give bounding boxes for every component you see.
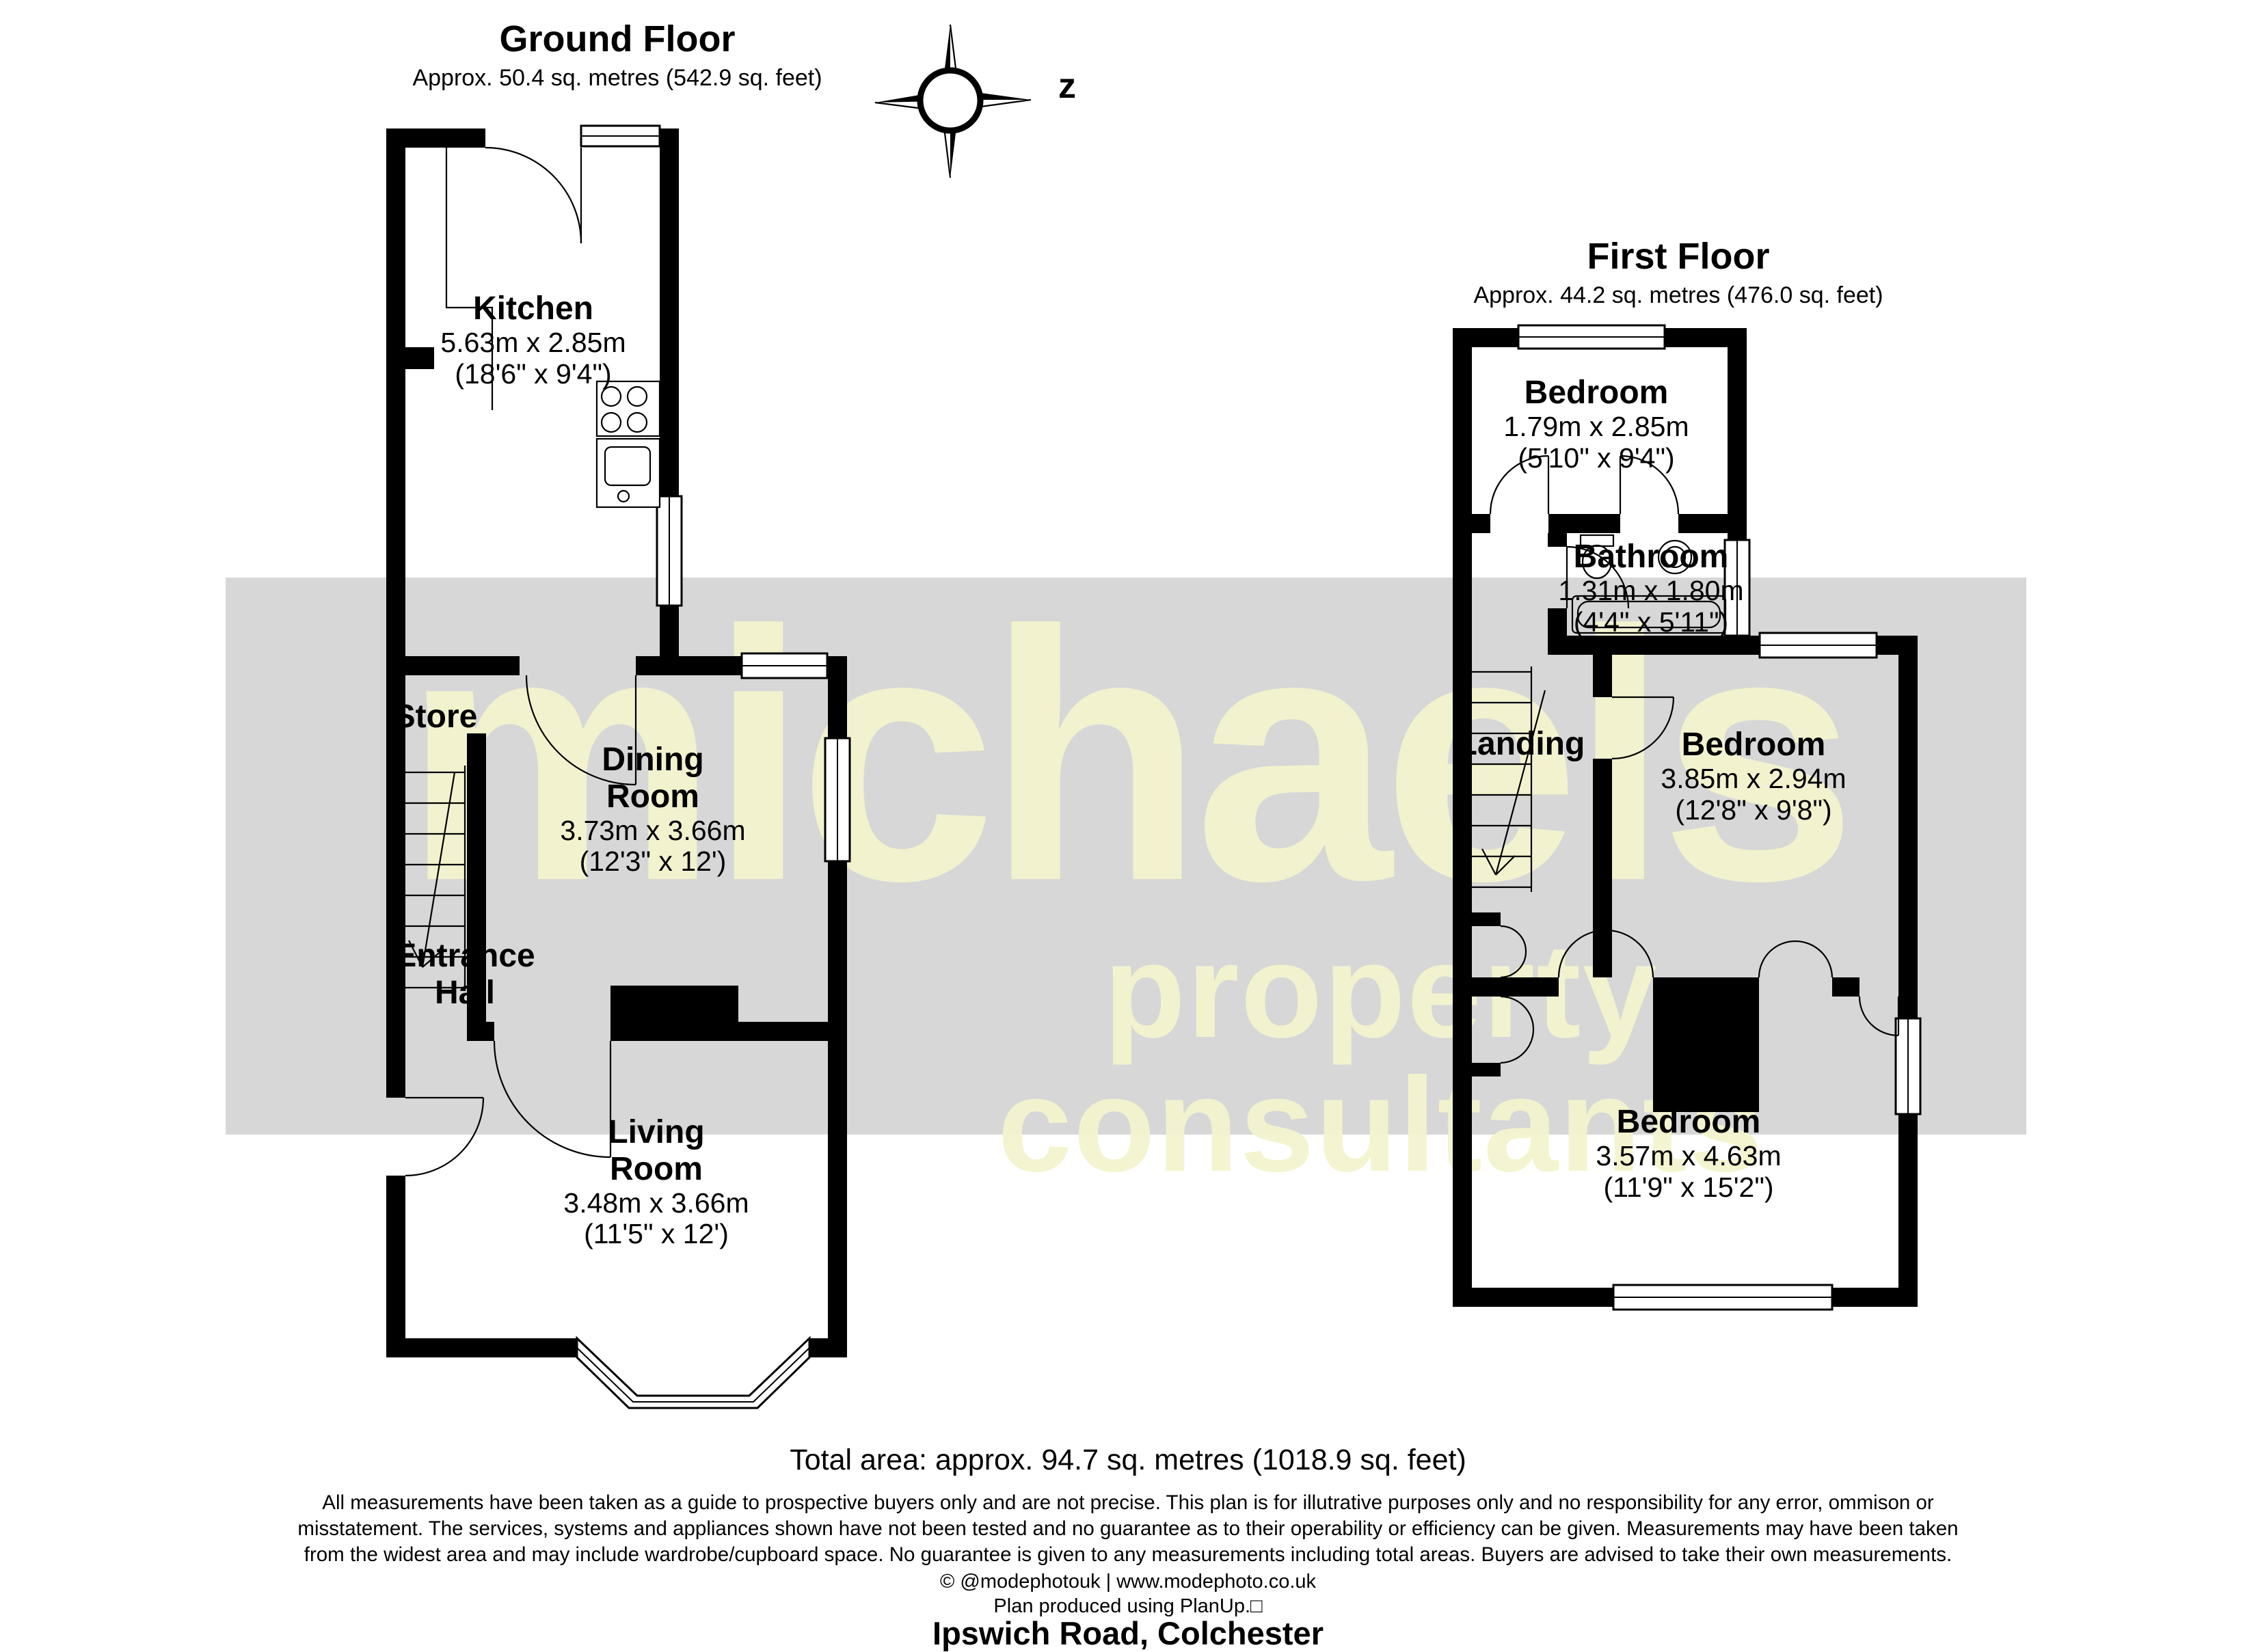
room-dim-imperial: (4'4" x 5'11") [1535, 607, 1767, 638]
room-dim-metric: 3.48m x 3.66m [547, 1188, 766, 1219]
disclaimer-line-2: misstatement. The services, systems and … [0, 1516, 2256, 1542]
room-dim-imperial: (12'8" x 9'8") [1630, 795, 1877, 826]
credit-text: © @modephotouk | www.modephoto.co.uk [0, 1571, 2256, 1593]
room-label-bathroom: Bathroom 1.31m x 1.80m (4'4" x 5'11") [1535, 539, 1767, 638]
first-floor-header: First Floor Approx. 44.2 sq. metres (476… [1439, 234, 1918, 310]
room-name: Landing [1442, 726, 1600, 763]
ground-floor-header: Ground Floor Approx. 50.4 sq. metres (54… [378, 16, 857, 93]
compass-hub [920, 70, 980, 131]
disclaimer-line-1: All measurements have been taken as a gu… [0, 1490, 2256, 1516]
room-name: Dining Room [571, 742, 735, 815]
front-door [405, 1098, 483, 1176]
room-label-store: Store [391, 699, 480, 735]
ground-floor-area: Approx. 50.4 sq. metres (542.9 sq. feet) [378, 63, 857, 93]
room-label-bedroom-2: Bedroom 3.85m x 2.94m (12'8" x 9'8") [1630, 727, 1877, 826]
room-dim-metric: 3.85m x 2.94m [1630, 763, 1877, 795]
room-label-dining-room: Dining Room 3.73m x 3.66m (12'3" x 12') [530, 742, 776, 878]
first-floor-plan [1449, 328, 1928, 1381]
room-dim-metric: 1.31m x 1.80m [1535, 576, 1767, 607]
bedroom1-window [1518, 325, 1665, 349]
floorplan-page: michaels property consultants Ground Flo… [0, 0, 2256, 1640]
first-floor-area: Approx. 44.2 sq. metres (476.0 sq. feet) [1439, 280, 1918, 310]
dining-top-window [742, 653, 827, 678]
closet-bifold-right-of-chimney [1759, 941, 1832, 977]
room-dim-imperial: (11'5" x 12') [547, 1219, 766, 1250]
sink-icon [597, 439, 660, 507]
compass-icon [875, 19, 1046, 183]
room-dim-imperial: (12'3" x 12') [530, 846, 776, 878]
first-floor-title: First Floor [1439, 234, 1918, 280]
room-dim-metric: 3.73m x 3.66m [530, 815, 776, 847]
ground-floor-title: Ground Floor [378, 16, 857, 63]
dining-side-window [825, 738, 850, 861]
bedroom3-bottom-window [1613, 1285, 1832, 1310]
room-name: Bedroom [1630, 727, 1877, 763]
room-dim-imperial: (18'6" x 9'4") [390, 359, 677, 390]
room-dim-metric: 1.79m x 2.85m [1473, 411, 1719, 443]
room-label-kitchen: Kitchen 5.63m x 2.85m (18'6" x 9'4") [390, 290, 677, 390]
room-label-living-room: Living Room 3.48m x 3.66m (11'5" x 12') [547, 1114, 766, 1250]
kitchen-top-window [581, 126, 660, 146]
disclaimer-text: All measurements have been taken as a gu… [0, 1490, 2256, 1567]
kitchen-back-door [485, 148, 581, 243]
closet-bifold-wall-left-upper [1501, 926, 1526, 977]
kitchen-side-window [657, 496, 682, 606]
closet-bifold-wall-left-lower [1501, 997, 1533, 1063]
property-address: Ipswich Road, Colchester [0, 1614, 2256, 1652]
room-name: Bathroom [1535, 539, 1767, 576]
living-bay-window [577, 1338, 809, 1408]
room-label-entrance-hall: Entrance Hall [386, 938, 543, 1012]
disclaimer-line-3: from the widest area and may include war… [0, 1542, 2256, 1568]
room-label-landing: Landing [1442, 726, 1600, 763]
room-name: Bedroom [1566, 1104, 1812, 1141]
chimney-breast [610, 986, 738, 1041]
room-dim-metric: 5.63m x 2.85m [390, 327, 677, 359]
stairs-direction-arrow [1482, 690, 1545, 875]
compass-north-label: z [1058, 66, 1076, 107]
room-name: Kitchen [390, 290, 677, 327]
room-label-bedroom-3: Bedroom 3.57m x 4.63m (11'9" x 15'2") [1566, 1104, 1812, 1204]
room-label-bedroom-1: Bedroom 1.79m x 2.85m (5'10" x 9'4") [1473, 375, 1719, 474]
room-name: Entrance Hall [386, 938, 543, 1012]
bedroom3-side-window [1896, 1018, 1920, 1114]
bedroom2-window [1760, 633, 1877, 658]
total-area-text: Total area: approx. 94.7 sq. metres (101… [0, 1444, 2256, 1477]
chimney-breast [1653, 977, 1759, 1112]
room-dim-imperial: (11'9" x 15'2") [1566, 1172, 1812, 1204]
room-name: Store [391, 699, 480, 735]
bedroom3-door [1859, 997, 1898, 1035]
room-name: Living Room [591, 1114, 721, 1188]
room-dim-metric: 3.57m x 4.63m [1566, 1141, 1812, 1172]
room-name: Bedroom [1473, 375, 1719, 411]
room-dim-imperial: (5'10" x 9'4") [1473, 443, 1719, 474]
landing-stairs [1472, 666, 1545, 892]
